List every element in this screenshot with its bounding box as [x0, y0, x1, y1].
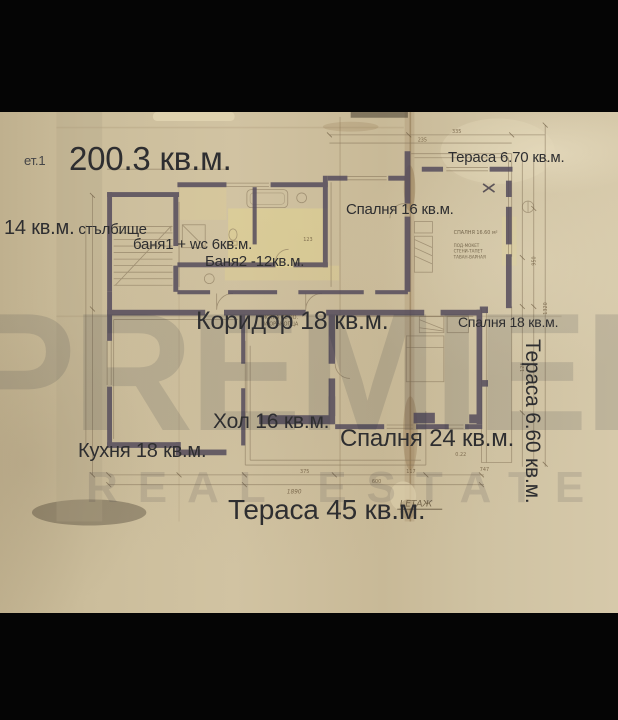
ceiling-finish-note: ТАВАН-ВАРНАЯ: [453, 254, 486, 259]
letterbox-bottom: [0, 613, 618, 720]
plan-dim: 375: [300, 469, 309, 475]
wall-finish-note: СТЕНИ-ТАПЕТ: [454, 249, 483, 254]
plan-dim: 123: [303, 237, 312, 243]
plan-dim: 117: [406, 469, 415, 475]
label-floor-number: ет.1: [24, 154, 45, 168]
label-staircase: 14 кв.м. стълбище: [4, 217, 147, 239]
label-bedroom-24: Спалня 24 кв.м.: [340, 426, 514, 452]
plan-dim: 1320: [543, 302, 549, 314]
label-terrace-660: Тераса 6.60 кв.м.: [521, 339, 544, 503]
label-terrace-670: Тераса 6.70 кв.м.: [448, 150, 565, 167]
plan-dim: 235: [418, 137, 427, 143]
plan-dim: 0.22: [455, 452, 466, 458]
label-staircase-area: 14 кв.м.: [4, 217, 74, 239]
room-name-note: СПАЛНЯ 16.60 м²: [454, 230, 498, 236]
letterbox-top: [0, 0, 618, 112]
screenshot-root: 335 235 123 950 1320 125 375 600 117 0.2…: [0, 0, 618, 720]
label-bedroom-18: Спалня 18 кв.м.: [458, 315, 558, 330]
plan-dim: 335: [452, 129, 461, 135]
x-mark-icon: [483, 184, 494, 192]
plan-dim: 950: [531, 256, 537, 265]
plan-dim: 600: [372, 479, 381, 485]
label-living-room: Хол 16 кв.м.: [213, 410, 329, 433]
label-bath1: баня1 + wc 6кв.м.: [133, 237, 252, 254]
plan-dim: 747: [480, 467, 489, 473]
floor-finish-note: ПОД-МОКЕТ: [454, 243, 480, 248]
sink-icon: [297, 193, 307, 203]
label-corridor: Коридор 18 кв.м.: [196, 308, 389, 336]
label-bedroom-16: Спалня 16 кв.м.: [346, 202, 454, 219]
label-kitchen: Кухня 18 кв.м.: [78, 440, 206, 462]
label-terrace-45: Тераса 45 кв.м.: [228, 495, 425, 526]
label-total-area: 200.3 кв.м.: [69, 141, 232, 177]
label-bath2: Баня2 -12кв.м.: [205, 254, 304, 271]
